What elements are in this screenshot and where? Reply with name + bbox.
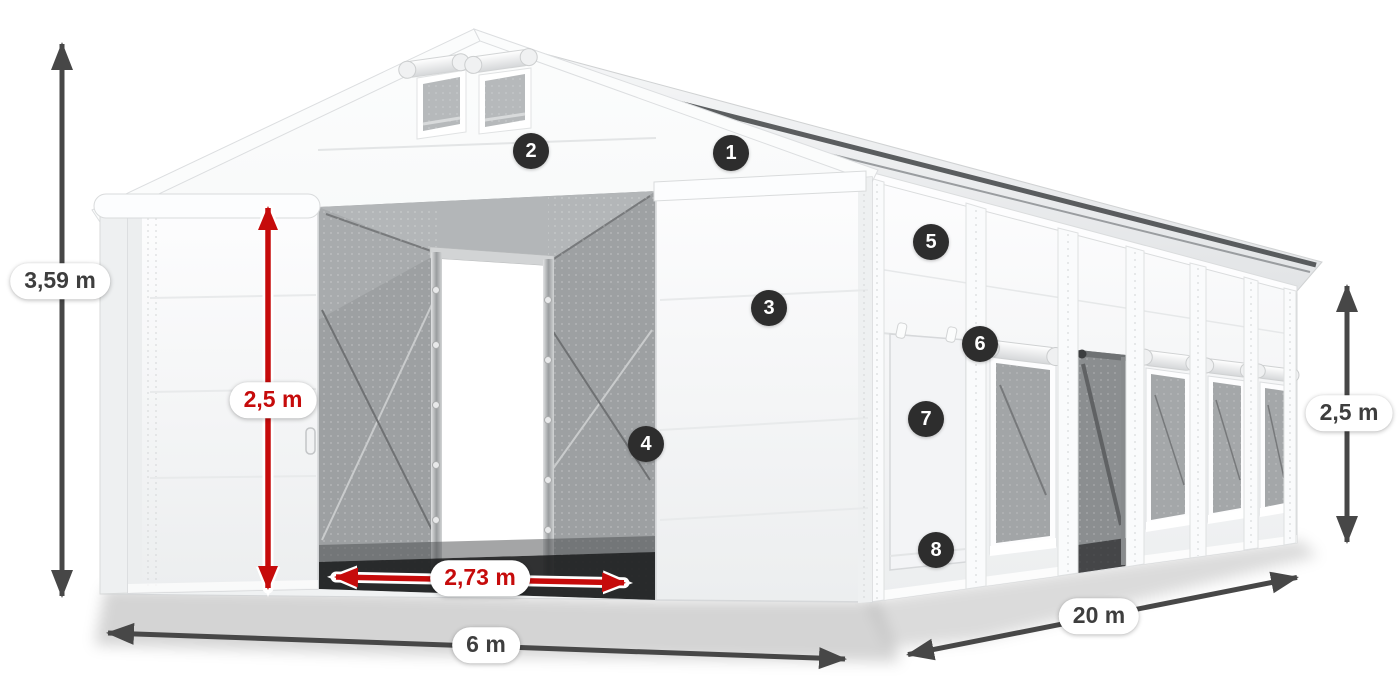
front-right-door-panel	[656, 177, 872, 603]
feature-marker-7: 7	[908, 401, 944, 437]
feature-marker-2: 2	[513, 133, 549, 169]
tent-product-diagram: 3,59 m 2,5 m 2,73 m 6 m 20 m 2,5 m 1 2 3…	[0, 0, 1400, 700]
door-handle	[306, 428, 315, 454]
feature-marker-3: 3	[751, 290, 787, 326]
dimension-label-side-height: 2,5 m	[1306, 395, 1393, 431]
feature-marker-1: 1	[713, 135, 749, 171]
feature-marker-5: 5	[913, 224, 949, 260]
feature-marker-8: 8	[918, 532, 954, 568]
dimension-label-entrance-width: 2,73 m	[430, 560, 530, 596]
entrance-interior	[300, 180, 670, 610]
side-window-1	[980, 338, 1066, 556]
dimension-label-total-height: 3,59 m	[10, 263, 110, 299]
dimension-label-side-length: 20 m	[1059, 598, 1139, 634]
tent-illustration	[0, 0, 1400, 700]
feature-marker-6: 6	[962, 326, 998, 362]
dimension-label-entrance-height: 2,5 m	[230, 382, 317, 418]
side-wall-opening	[1078, 350, 1127, 574]
dimension-label-front-width: 6 m	[452, 627, 520, 663]
feature-marker-4: 4	[628, 426, 664, 462]
